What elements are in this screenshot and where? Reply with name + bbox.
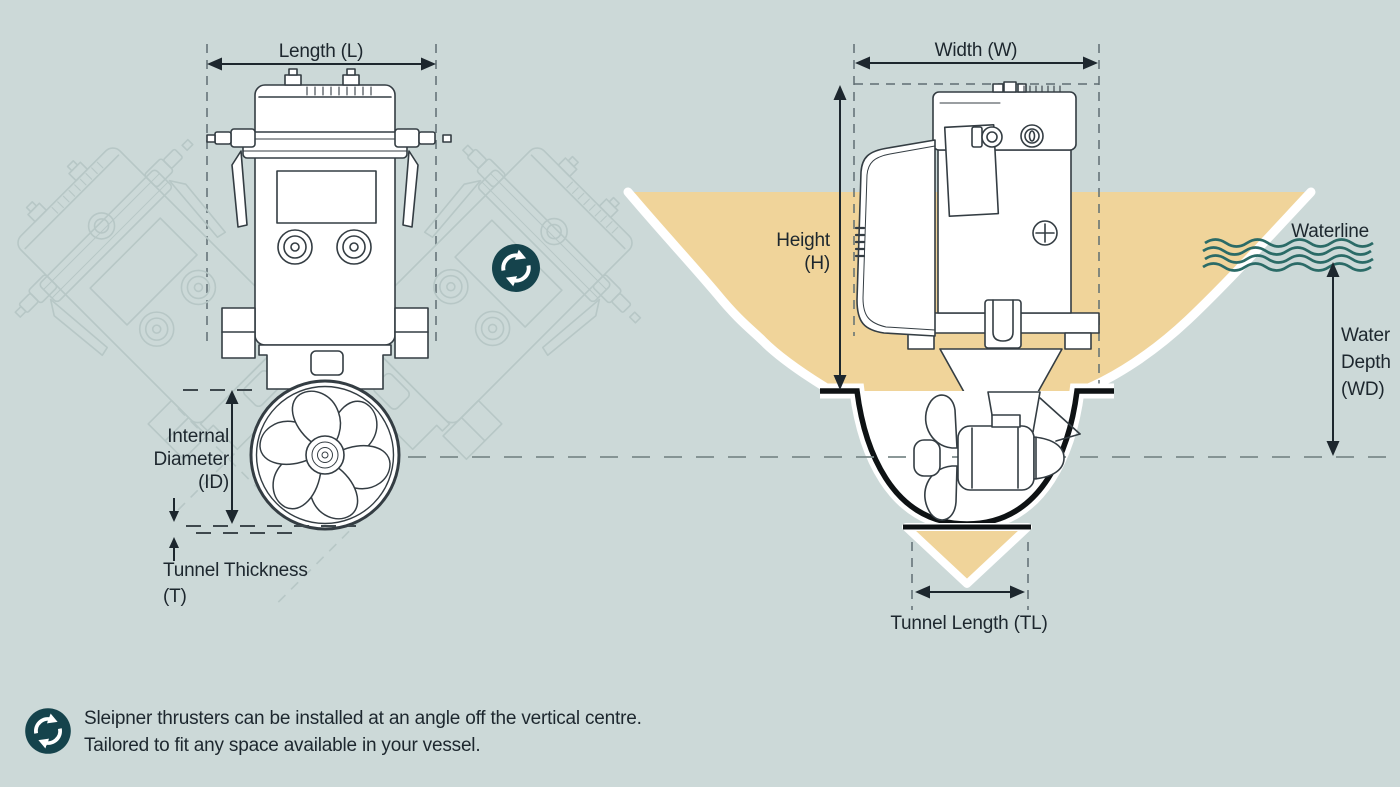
footer-note: Sleipner thrusters can be installed at a… (25, 708, 642, 756)
footer-text-line2: Tailored to fit any space available in y… (84, 735, 480, 756)
keel-tip (903, 527, 1031, 584)
footer-text-line1: Sleipner thrusters can be installed at a… (84, 708, 642, 729)
height-label-line1: Height (776, 230, 831, 251)
tunnel-thickness-label-line2: (T) (163, 586, 187, 607)
tunnel-length-label: Tunnel Length (TL) (890, 613, 1047, 634)
thruster-front-unit (207, 69, 451, 389)
diagram-canvas: Length (L) Internal Diameter (ID) Tunnel… (0, 0, 1400, 787)
internal-diameter-label-line3: (ID) (198, 472, 229, 493)
width-dimension: Width (W) (855, 40, 1098, 70)
propeller-front (251, 381, 399, 529)
height-label-line2: (H) (804, 253, 830, 274)
internal-diameter-label-line2: Diameter (154, 449, 230, 470)
internal-diameter-label-line1: Internal (167, 426, 229, 447)
water-depth-label-line2: Depth (1341, 352, 1391, 373)
rotate-arrows-icon (25, 708, 71, 754)
rotate-arrows-icon (492, 244, 540, 292)
length-label: Length (L) (279, 41, 364, 62)
water-depth-dimension: Water Depth (WD) (1327, 262, 1391, 456)
waterline-label: Waterline (1291, 221, 1369, 242)
tunnel-thickness-label-line1: Tunnel Thickness (163, 560, 308, 581)
water-depth-label-line3: (WD) (1341, 379, 1385, 400)
width-label: Width (W) (935, 40, 1018, 61)
left-view-thruster-front: Length (L) Internal Diameter (ID) Tunnel… (0, 41, 687, 607)
thruster-dimensions-diagram: Length (L) Internal Diameter (ID) Tunnel… (0, 0, 1400, 787)
water-depth-label-line1: Water (1341, 325, 1391, 346)
internal-diameter-dimension: Internal Diameter (ID) (154, 390, 260, 524)
length-dimension: Length (L) (207, 41, 436, 71)
